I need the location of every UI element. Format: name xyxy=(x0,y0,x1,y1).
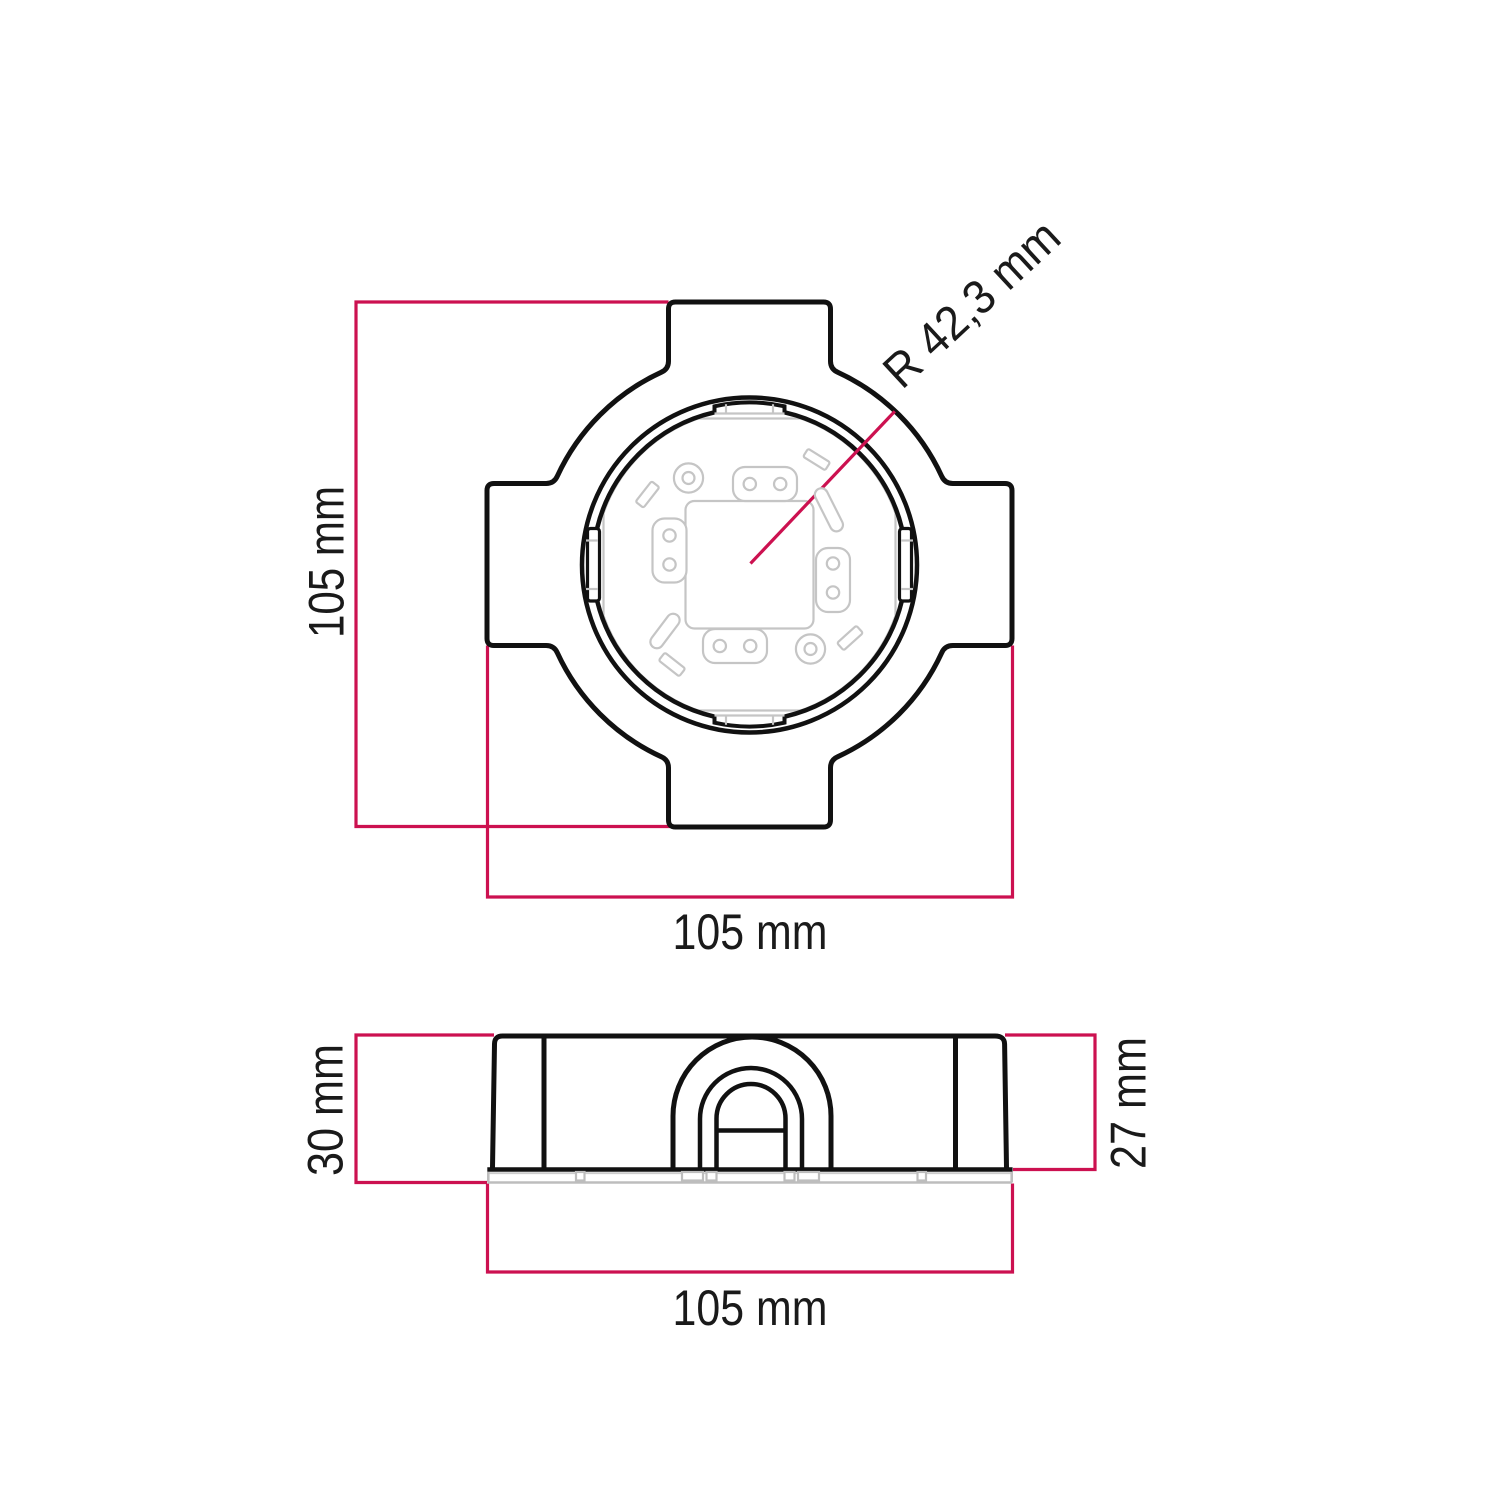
svg-text:105 mm: 105 mm xyxy=(673,904,828,960)
svg-text:105 mm: 105 mm xyxy=(299,486,355,638)
svg-text:105 mm: 105 mm xyxy=(673,1280,828,1336)
svg-text:30 mm: 30 mm xyxy=(298,1044,354,1176)
svg-text:27 mm: 27 mm xyxy=(1101,1037,1157,1169)
